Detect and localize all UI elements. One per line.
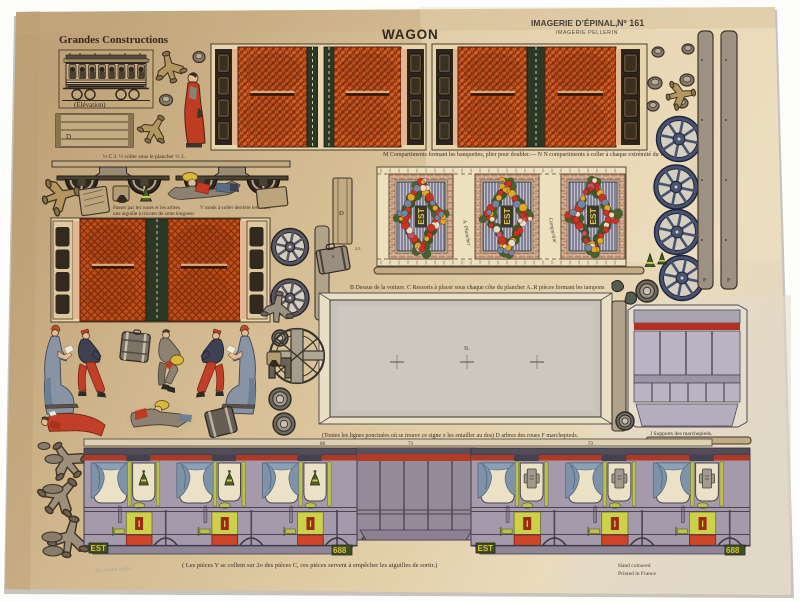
svg-text:Nº 161: Nº 161 [617, 18, 644, 28]
svg-text:D: D [339, 210, 344, 217]
svg-text:(Élévation): (Élévation) [74, 101, 106, 109]
svg-text:Hand coloured: Hand coloured [618, 563, 651, 569]
svg-text:M Compartiments formant les b: M Compartiments formant les banquettes, … [383, 151, 679, 158]
svg-text:73: 73 [588, 442, 594, 447]
svg-text:I: I [224, 519, 227, 529]
svg-text:(Toutes les lignes ponctuées o: (Toutes les lignes ponctuées où se trouv… [322, 432, 579, 439]
svg-text:J Supports des marchepieds.: J Supports des marchepieds. [650, 431, 713, 437]
svg-text:½ C 3. ½ coller sous l: ½ C 3. ½ coller sous le plancher ½ 3. [103, 153, 185, 160]
svg-text:EST: EST [588, 207, 598, 224]
svg-text:73: 73 [408, 442, 414, 447]
svg-text:B Dessus de la voiture. C Res: B Dessus de la voiture. C Ressorts à pla… [350, 284, 605, 291]
svg-text:D: D [66, 133, 71, 141]
svg-text:Printed in France: Printed in France [618, 571, 656, 577]
svg-text:B.: B. [464, 345, 470, 352]
svg-text:IMAGERIE PELLERIN: IMAGERIE PELLERIN [556, 30, 618, 36]
svg-text:I: I [309, 519, 312, 529]
svg-text:EST: EST [478, 544, 494, 553]
svg-text:688: 688 [333, 546, 347, 555]
svg-text:une aiguille à tricoter de cet: une aiguille à tricoter de cette longueu… [113, 211, 195, 217]
svg-text:EST: EST [502, 207, 512, 224]
svg-text:88: 88 [320, 442, 326, 447]
svg-text:I: I [701, 519, 704, 529]
svg-text:EST: EST [91, 544, 107, 553]
svg-text:WAGON: WAGON [382, 27, 439, 42]
svg-text:688: 688 [726, 546, 740, 555]
svg-text:I: I [614, 519, 617, 529]
svg-text:IMAGERIE D’ÉPINAL,: IMAGERIE D’ÉPINAL, [531, 18, 617, 28]
svg-text:I: I [526, 519, 529, 529]
svg-text:EST: EST [416, 207, 426, 224]
svg-text:Grandes Constructions: Grandes Constructions [59, 34, 169, 46]
svg-text:( Les pièces Y se collent sur: ( Les pièces Y se collent sur 2o des piè… [182, 562, 437, 569]
svg-text:I: I [138, 519, 141, 529]
